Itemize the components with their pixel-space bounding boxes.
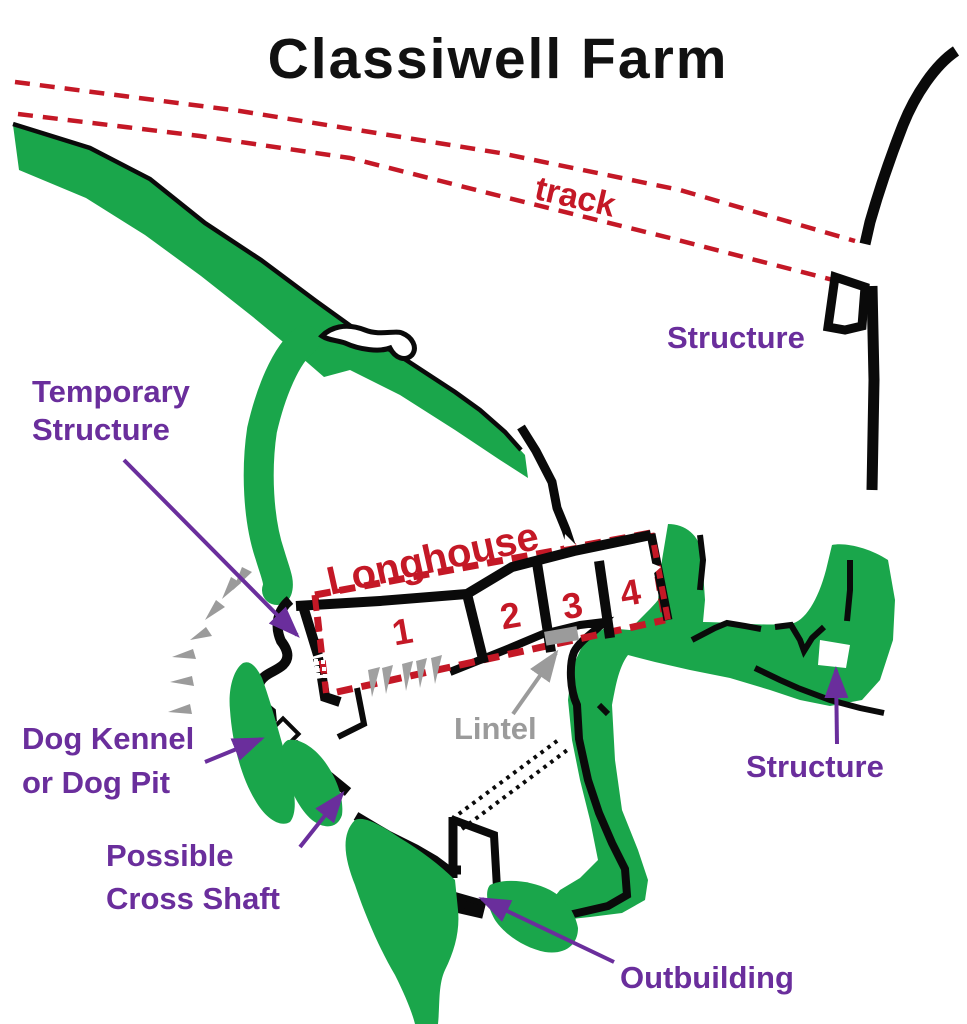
svg-text:Possible: Possible	[106, 838, 234, 873]
svg-text:Outbuilding: Outbuilding	[620, 960, 794, 995]
svg-text:Temporary: Temporary	[32, 374, 191, 409]
svg-text:Cross Shaft: Cross Shaft	[106, 881, 280, 916]
svg-text:or Dog Pit: or Dog Pit	[22, 765, 170, 800]
svg-text:Structure: Structure	[746, 749, 884, 784]
svg-text:Classiwell Farm: Classiwell Farm	[268, 27, 729, 91]
svg-text:Structure: Structure	[32, 412, 170, 447]
svg-text:Dog Kennel: Dog Kennel	[22, 721, 194, 756]
svg-text:Structure: Structure	[667, 320, 805, 355]
svg-text:Lintel: Lintel	[454, 711, 537, 746]
